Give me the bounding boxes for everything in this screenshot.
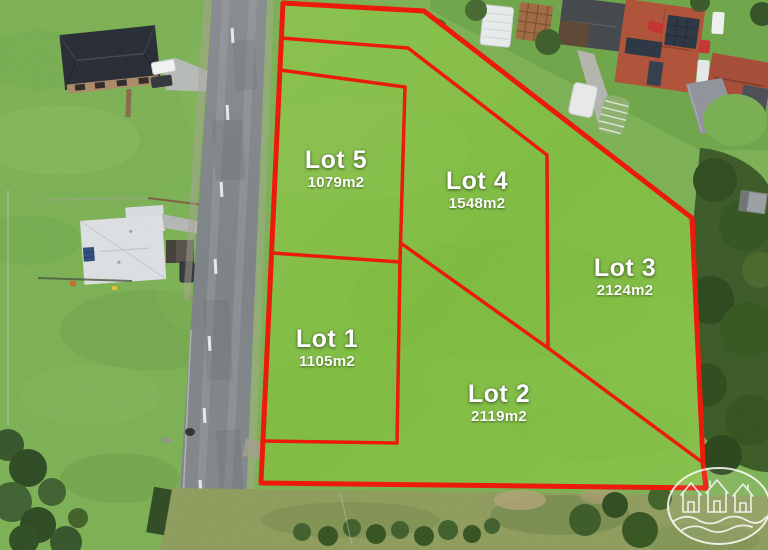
- aerial-subdivision-plan: Lot 5 1079m2 Lot 4 1548m2 Lot 3 2124m2 L…: [0, 0, 768, 550]
- three-houses-wave-oval-logo: [668, 468, 768, 544]
- aerial-photo: [0, 0, 768, 550]
- photo-grain: [0, 0, 768, 550]
